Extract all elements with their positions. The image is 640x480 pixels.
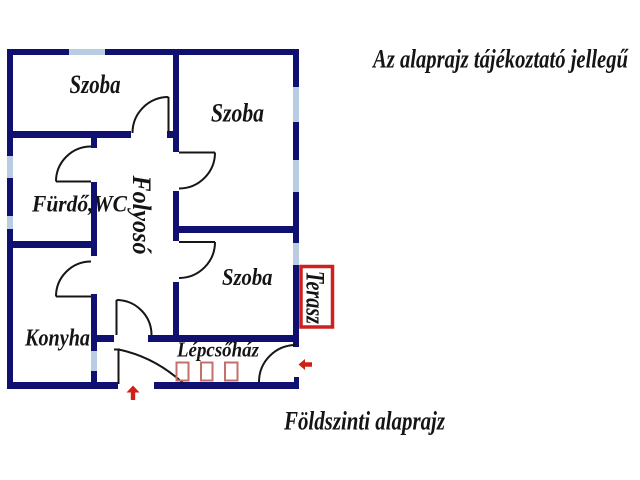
svg-text:Szoba: Szoba [211,99,264,128]
svg-text:Konyha: Konyha [24,326,90,352]
svg-text:Fürdő,WC: Fürdő,WC [31,192,128,217]
svg-text:Lépcsőház: Lépcsőház [176,338,260,362]
svg-text:Földszinti alaprajz: Földszinti alaprajz [283,407,446,436]
svg-text:Folyosó: Folyosó [127,175,156,255]
svg-text:Szoba: Szoba [222,265,273,291]
svg-text:Terasz: Terasz [301,271,330,325]
svg-text:Szoba: Szoba [70,70,121,99]
svg-text:Az alaprajz tájékoztató jelleg: Az alaprajz tájékoztató jellegű [371,45,629,74]
